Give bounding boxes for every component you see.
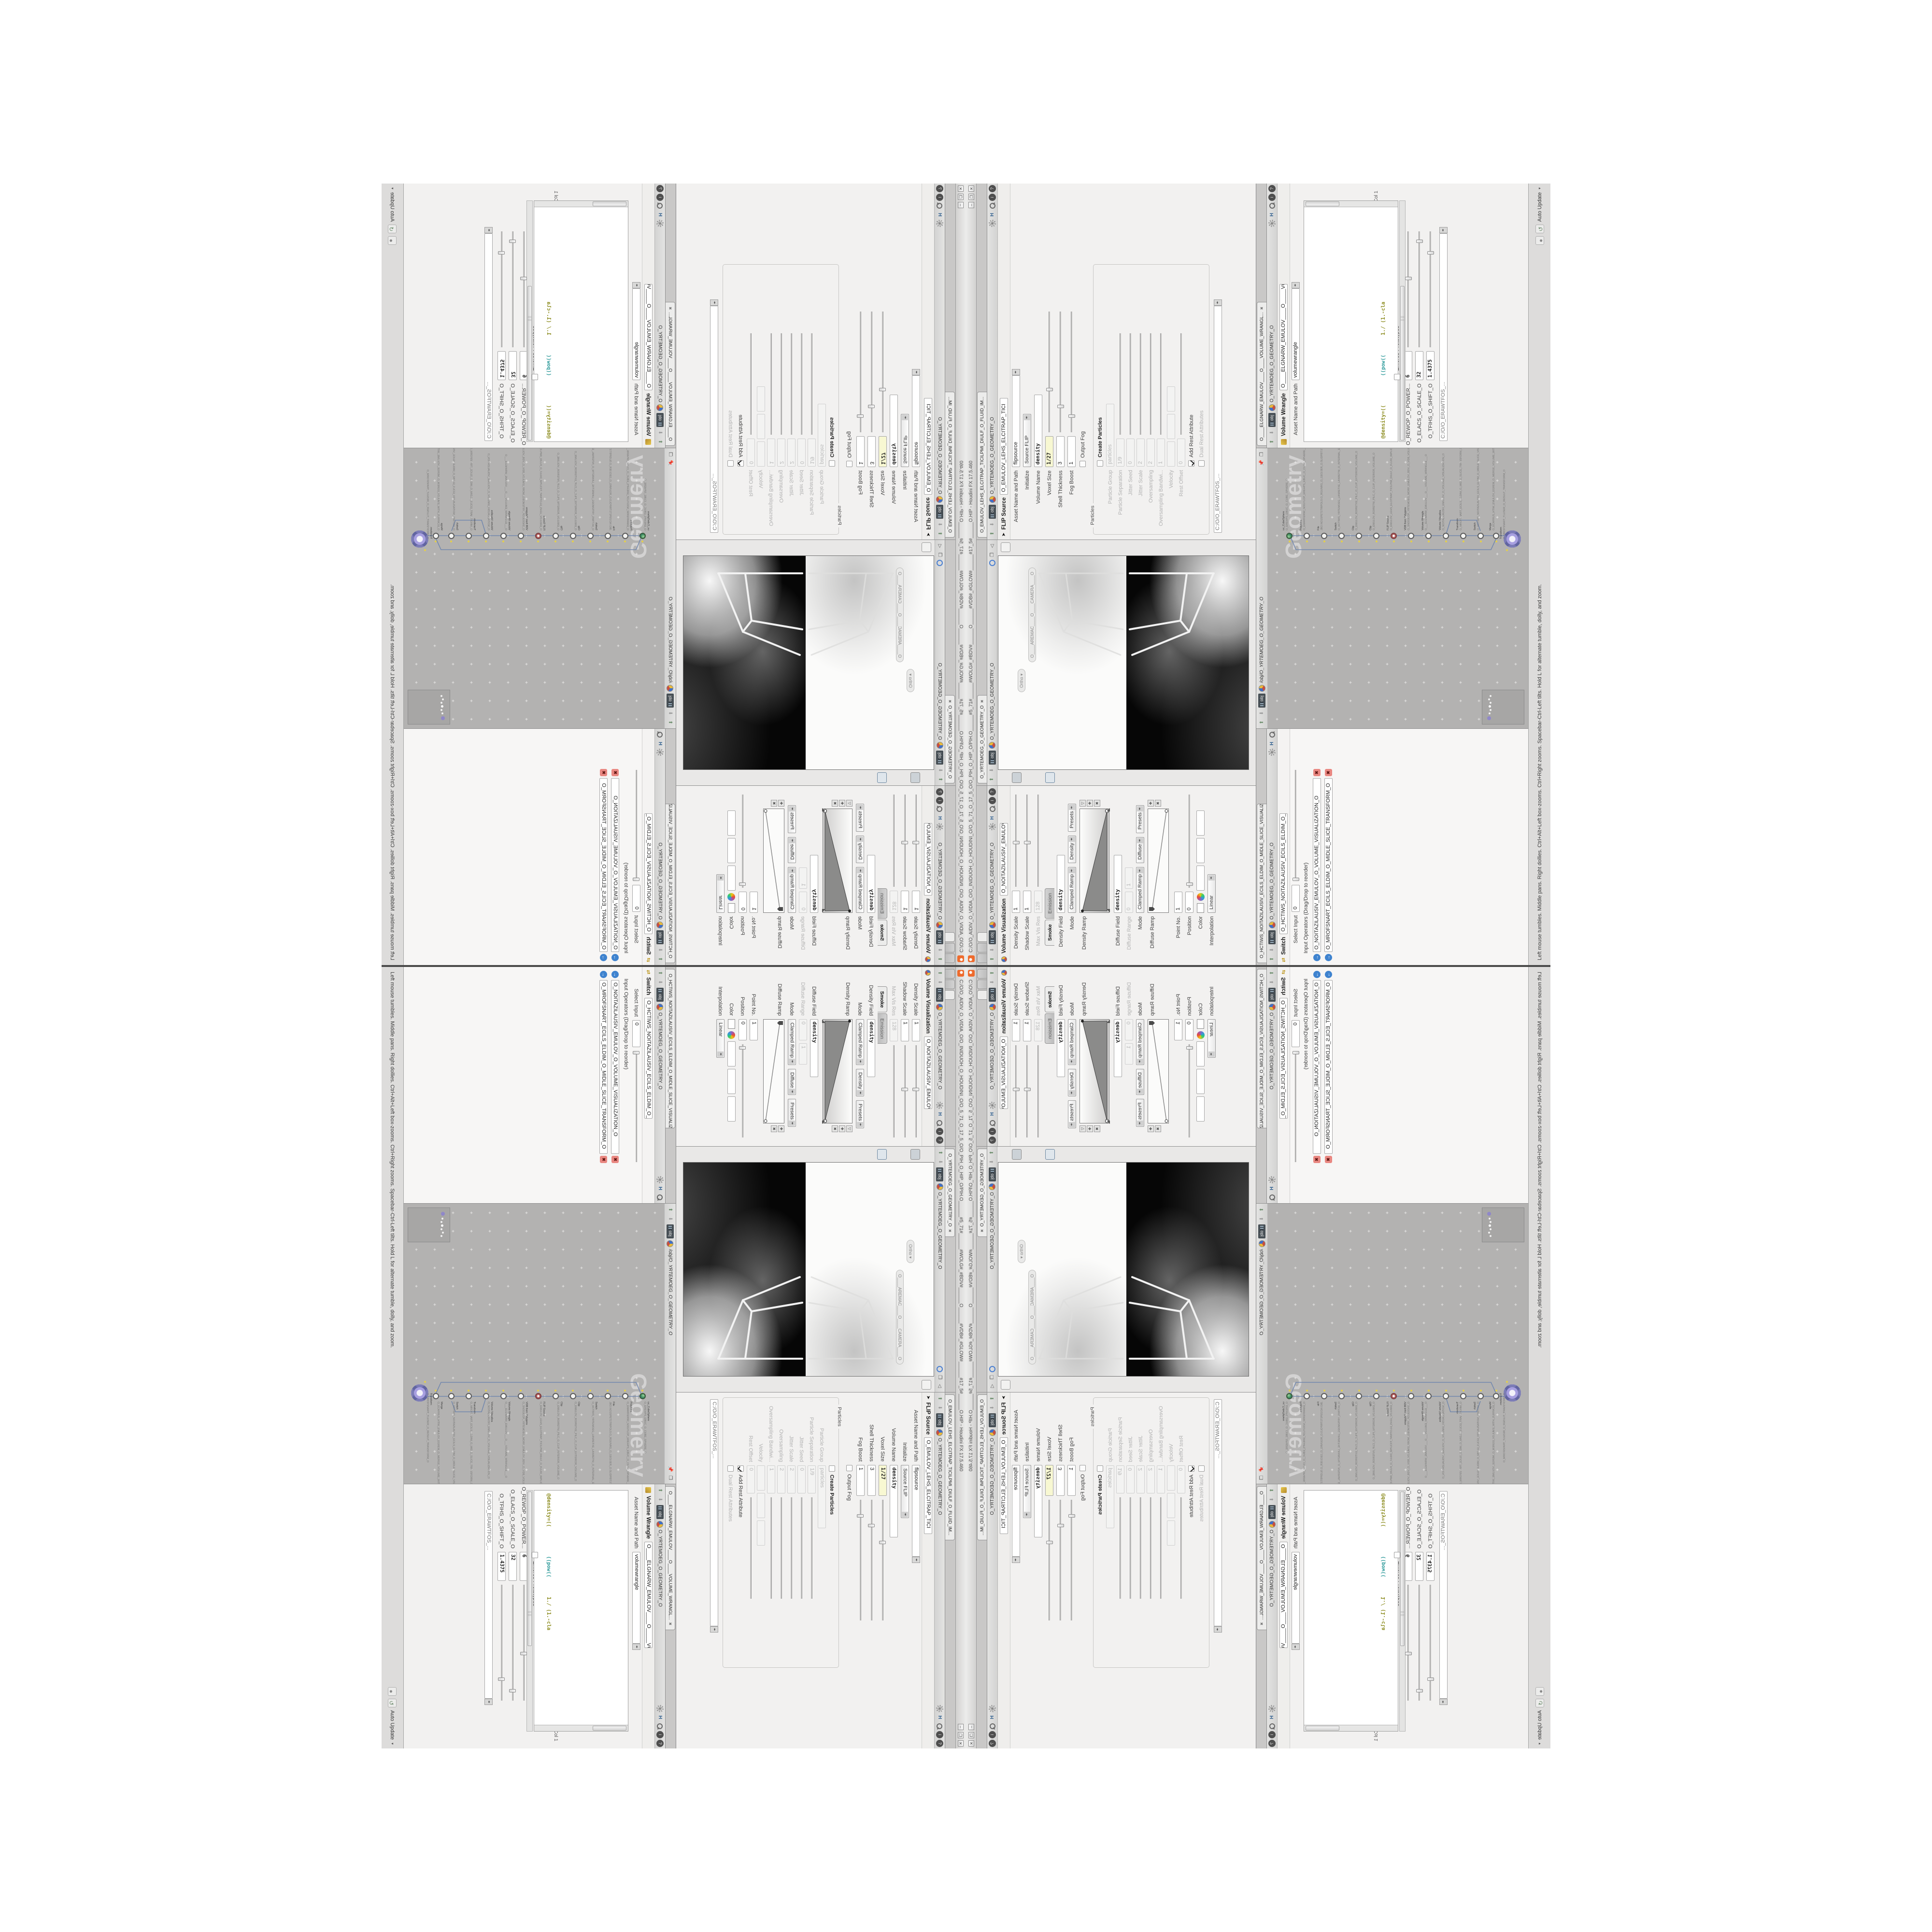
particle-separation-field[interactable]: 1/9 xyxy=(808,1465,816,1493)
tab-smoke[interactable]: Smoke xyxy=(1045,986,1054,1012)
viewport-tool-icon[interactable] xyxy=(799,772,809,783)
network-node[interactable]: Volume Wrangle O___ELGNARW_EMULOV___O___… xyxy=(1425,532,1432,539)
color-component-field[interactable] xyxy=(727,810,736,836)
color-wheel-icon[interactable] xyxy=(1197,893,1205,901)
viewport-tool-icon[interactable] xyxy=(1123,1149,1133,1160)
node-name-field[interactable]: O____ELGNARW_EMULOV____O_____VO xyxy=(1279,284,1288,390)
node-circle[interactable] xyxy=(622,1393,628,1399)
diffuse-range-max[interactable]: 1 xyxy=(799,867,807,889)
select-input-field[interactable]: 0 xyxy=(1292,1020,1300,1047)
point-no-field[interactable]: 1 xyxy=(1174,892,1182,913)
recook-icon[interactable]: ↺ xyxy=(388,1699,397,1707)
diffuse-ramp-widget[interactable] xyxy=(763,1019,784,1123)
hand-tool-icon[interactable]: ● xyxy=(1535,236,1544,245)
reorder-arrow-icon[interactable]: → xyxy=(1325,954,1332,961)
flip-pane-tab[interactable]: O_EMULOV_LEHS_ELCITRAP_TICILPMI_DIULF_O_… xyxy=(945,392,955,538)
rest-offset-field[interactable]: 0 xyxy=(747,1465,755,1493)
scale-field[interactable]: 32 xyxy=(1415,1552,1423,1581)
tab-emission[interactable]: Emission xyxy=(878,1013,887,1044)
viewport-tool-icon[interactable] xyxy=(1012,1149,1022,1160)
density-dropdown[interactable]: Density xyxy=(856,1069,864,1096)
jitter-scale-slider[interactable] xyxy=(791,1497,792,1599)
velocity-component-field[interactable] xyxy=(757,1493,765,1518)
obj-context-chip[interactable]: obj xyxy=(1268,1505,1276,1519)
node-circle[interactable] xyxy=(639,1393,646,1399)
nav-up-icon[interactable]: ⬆ xyxy=(1269,438,1276,445)
search-icon[interactable] xyxy=(989,1119,996,1126)
particle-separation-slider[interactable] xyxy=(811,333,812,435)
obj-context-chip[interactable]: obj xyxy=(1258,1224,1265,1238)
shadow-scale-slider[interactable] xyxy=(1026,1045,1028,1137)
ramp-add-point-icon[interactable]: ✚ xyxy=(839,800,845,807)
tab-close-icon[interactable]: ✖ xyxy=(948,1229,952,1233)
network-node[interactable]: uv_CubeSphere O_EREHPS_EBUC_O_CUBE_SPHER… xyxy=(1286,1393,1293,1400)
display-option-icon[interactable] xyxy=(1045,1380,1055,1390)
diffuse-range-min[interactable]: 0 xyxy=(799,892,807,913)
viewport-tool-icon[interactable] xyxy=(888,772,898,783)
select-input-slider[interactable] xyxy=(1295,770,1296,881)
search-icon[interactable] xyxy=(936,1722,943,1730)
nav-up-icon[interactable]: ⬆ xyxy=(937,955,943,963)
viewport-tool-icon[interactable] xyxy=(888,1149,898,1160)
node-circle[interactable] xyxy=(518,533,524,539)
input-operator-item[interactable]: O_NOITAZILAUSIV_EMULOV_O_VOLUME_VISUALIZ… xyxy=(1313,980,1321,1154)
pane-maximize-icon[interactable]: ❒ xyxy=(989,1374,996,1381)
obj-context-chip[interactable]: obj xyxy=(989,988,996,1002)
asset-name-field[interactable]: flipsource xyxy=(1012,375,1020,467)
nav-down-icon[interactable]: ⬇ xyxy=(1259,1215,1265,1222)
node-name-field[interactable]: O____ELGNARW_EMULOV____O_____VO xyxy=(1279,1542,1288,1648)
viewport-tool-icon[interactable] xyxy=(855,772,865,783)
jitter-seed-slider[interactable] xyxy=(801,1497,802,1599)
diffuse-dropdown[interactable]: Diffuse xyxy=(1136,1069,1144,1095)
spinner-icon[interactable]: ◂▸ xyxy=(1292,1644,1300,1650)
asset-name-field[interactable]: flipsource xyxy=(912,375,920,467)
shift-slider[interactable] xyxy=(501,231,502,347)
create-particles-checkbox[interactable] xyxy=(829,1465,835,1472)
network-node[interactable]: Volume Wrangle O___ELGNARW_EMULOV___O___… xyxy=(500,1393,507,1400)
viewport-tool-icon[interactable] xyxy=(822,1149,831,1160)
auto-update-label[interactable]: Auto Update xyxy=(1537,1710,1543,1740)
node-circle[interactable] xyxy=(500,1393,507,1399)
tab-close-icon[interactable]: ✖ xyxy=(980,700,984,703)
diffuse-range-max[interactable]: 1 xyxy=(799,1043,807,1065)
max-vis-res-slider[interactable] xyxy=(1037,1045,1039,1137)
enforce-prototypes-checkbox[interactable] xyxy=(532,374,538,380)
display-option-icon[interactable] xyxy=(922,1380,931,1390)
remove-input-icon[interactable]: ✖ xyxy=(612,1156,619,1163)
search-icon[interactable] xyxy=(656,1193,664,1201)
network-node[interactable]: File JBO.NO1SPET1TRIPOLS.O_RGUNRG_O_GEO/… xyxy=(604,1393,611,1400)
node-path[interactable]: O_YRTEMOEG_O_GEOMETRY_O xyxy=(937,1438,942,1515)
pane-maximize-icon[interactable]: ❒ xyxy=(1258,451,1265,458)
jitter-scale-field[interactable]: 2 xyxy=(1136,439,1145,467)
ramp-add-point-icon[interactable]: ✚ xyxy=(839,1125,845,1132)
asset-path-field[interactable]: C:/O/O_ERAWTFOS_... xyxy=(1214,306,1222,533)
node-name-field[interactable]: O_EMULOV_LEHS_ELCITRAP_TICI xyxy=(1000,1437,1008,1534)
max-vis-res-field[interactable]: 128 xyxy=(1034,1019,1042,1041)
gear-icon[interactable] xyxy=(989,1102,996,1109)
nav-down-icon[interactable]: ⬇ xyxy=(937,1404,943,1411)
network-minimap[interactable] xyxy=(408,1207,450,1242)
param-pane-tab[interactable] xyxy=(977,932,987,942)
network-path[interactable]: /obj/O_YRTEMOEG_O_GEOMETRY_O xyxy=(668,597,673,683)
spinner-icon[interactable]: ◂▸ xyxy=(912,369,920,375)
nav-up-icon[interactable]: ⬆ xyxy=(937,776,943,783)
node-circle[interactable] xyxy=(1338,1393,1345,1399)
param-pane-tab[interactable] xyxy=(945,953,955,963)
reorder-arrow-icon[interactable]: → xyxy=(600,971,608,978)
dual-rest-attributes-checkbox[interactable] xyxy=(1198,1465,1205,1472)
nav-down-icon[interactable]: ⬇ xyxy=(989,1404,996,1411)
shadow-scale-field[interactable]: 1 xyxy=(901,1019,909,1041)
node-circle[interactable] xyxy=(1493,533,1499,539)
search-icon[interactable] xyxy=(989,1722,996,1730)
node-circle[interactable] xyxy=(587,1393,594,1399)
display-option-icon[interactable] xyxy=(833,1380,842,1390)
select-input-field[interactable]: 0 xyxy=(1292,885,1300,912)
density-dropdown[interactable]: Density xyxy=(1068,836,1076,863)
scale-field[interactable]: 32 xyxy=(509,1552,517,1581)
search-icon[interactable] xyxy=(656,202,664,210)
network-node[interactable]: Clip O_EMULOV_ROIRETXE_PILC_O_CLIP_EXTER… xyxy=(1356,1393,1363,1400)
nav-down-icon[interactable]: ⬇ xyxy=(989,521,996,528)
ramp-delete-point-icon[interactable]: ✖ xyxy=(771,800,777,807)
oversampling-bandwidth-field[interactable]: 1 xyxy=(1157,439,1165,467)
viewport-tool-icon[interactable] xyxy=(1112,1149,1122,1160)
network-node[interactable]: VDB from Polygons O_SNOGILOP_YRTEMOEG_MO… xyxy=(517,1393,524,1400)
node-circle[interactable] xyxy=(483,1393,489,1399)
input-operator-item[interactable]: O_MROFSNART_ECILS_ELDIM_O_MIDLE_SLICE_TR… xyxy=(600,980,608,1154)
select-input-slider[interactable] xyxy=(1295,1051,1296,1162)
node-circle[interactable] xyxy=(1304,1393,1310,1399)
viewport-tool-icon[interactable] xyxy=(877,772,887,783)
density-dropdown[interactable]: Density xyxy=(856,836,864,863)
obj-context-chip[interactable]: obj xyxy=(937,1167,944,1181)
node-circle[interactable] xyxy=(1443,533,1449,539)
view-mode-pill[interactable]: Ortho ▾ xyxy=(1018,669,1025,692)
shift-field[interactable]: 1.4375 xyxy=(1426,351,1435,380)
color-swatch[interactable] xyxy=(1197,1019,1204,1029)
nav-up-icon[interactable]: ⬆ xyxy=(667,719,674,726)
node-circle[interactable] xyxy=(466,533,472,539)
color-component-field[interactable] xyxy=(1196,838,1205,863)
color-component-field[interactable] xyxy=(1196,1041,1205,1066)
help-icon[interactable]: ? xyxy=(936,1740,943,1747)
output-fog-checkbox[interactable] xyxy=(1080,1465,1086,1471)
diffuse-ramp-widget[interactable] xyxy=(763,809,784,913)
nav-up-icon[interactable]: ⬆ xyxy=(989,530,996,537)
node-circle[interactable] xyxy=(433,1393,439,1399)
obj-context-chip[interactable]: obj xyxy=(667,694,674,708)
spiral-target-icon[interactable] xyxy=(937,560,943,566)
add-rest-attribute-checkbox[interactable] xyxy=(738,460,744,467)
gear-icon[interactable] xyxy=(936,823,943,830)
switch-pane-tab[interactable]: O_HCTIWS_NOITAZILAUSIV_ECILS_ELDIM_O_MID… xyxy=(1257,804,1266,963)
viewport-canvas[interactable]: Ortho ▾ O____AREMAC____O____CAMERA____O xyxy=(683,555,934,770)
rest-offset-field[interactable]: 0 xyxy=(1177,1465,1185,1493)
jitter-seed-slider[interactable] xyxy=(1130,1497,1131,1599)
jitter-scale-slider[interactable] xyxy=(791,333,792,435)
nav-up-icon[interactable]: ⬆ xyxy=(1269,969,1276,977)
viewport-node-path[interactable]: O_YRTEMOEG_O_GEOMETRY_O xyxy=(938,1192,943,1269)
param-pane-tab[interactable] xyxy=(945,980,955,989)
obj-context-chip[interactable]: obj xyxy=(1268,988,1276,1002)
pane-maximize-icon[interactable]: ❒ xyxy=(667,1474,674,1481)
display-option-icon[interactable] xyxy=(888,543,898,553)
nav-down-icon[interactable]: ⬇ xyxy=(657,429,664,436)
tab-close-icon[interactable]: ✖ xyxy=(1260,307,1264,310)
chevron-down-icon[interactable]: ▾ xyxy=(1537,1743,1542,1745)
tab-close-icon[interactable]: ✖ xyxy=(948,700,952,703)
oversampling-field[interactable]: 2 xyxy=(1147,439,1155,467)
particle-separation-slider[interactable] xyxy=(811,1497,812,1599)
viewport-tool-icon[interactable] xyxy=(844,1149,853,1160)
operation-controls-icon[interactable]: ➤ xyxy=(1001,533,1007,537)
code-hscrollbar[interactable]: ⣿⣿ xyxy=(1399,1490,1406,1732)
viewport-tool-icon[interactable] xyxy=(922,772,931,783)
spinner-icon[interactable]: ◂▸ xyxy=(632,282,640,288)
spinner-icon[interactable]: ◂▸ xyxy=(1292,282,1300,288)
operation-controls-icon[interactable]: ➤ xyxy=(925,533,931,537)
display-option-icon[interactable] xyxy=(1023,1380,1033,1390)
reorder-arrow-icon[interactable]: → xyxy=(1313,954,1321,961)
node-circle[interactable] xyxy=(1338,533,1345,539)
pane-maximize-icon[interactable]: ❒ xyxy=(1258,1474,1265,1481)
velocity-component-field[interactable] xyxy=(1167,1493,1175,1518)
display-option-icon[interactable] xyxy=(1101,1380,1110,1390)
max-vis-res-slider[interactable] xyxy=(893,1045,895,1137)
chevron-down-icon[interactable]: ▾ xyxy=(390,1743,395,1745)
viewport-tool-icon[interactable] xyxy=(844,772,853,783)
jitter-seed-slider[interactable] xyxy=(801,333,802,435)
oversampling-bandwidth-slider[interactable] xyxy=(770,1497,772,1599)
viewport-tool-icon[interactable] xyxy=(1023,1149,1033,1160)
mode-dropdown[interactable]: Clamped Ramp xyxy=(1068,867,1076,913)
spinner-icon[interactable]: ◂▸ xyxy=(1439,227,1448,233)
viewport-tool-icon[interactable] xyxy=(833,772,842,783)
network-node[interactable]: VDB from Polygons O_SNOGILOP_YRTEMOEG_MO… xyxy=(517,532,524,539)
display-option-icon[interactable] xyxy=(1001,543,1010,553)
density-scale-field[interactable]: 1 xyxy=(1012,1019,1020,1041)
network-node[interactable]: Volume Visualiza O_NOITAZILAUSIV_EMULOV_… xyxy=(1443,532,1449,539)
ramp-delete-point-icon[interactable]: ✖ xyxy=(771,1125,777,1132)
node-circle[interactable] xyxy=(1460,533,1466,539)
spinner-icon[interactable]: ◂▸ xyxy=(484,227,493,233)
viewport-tool-icon[interactable] xyxy=(1145,1149,1155,1160)
node-circle[interactable] xyxy=(433,533,439,539)
param-pane-tab[interactable] xyxy=(945,943,955,952)
obj-context-chip[interactable]: obj xyxy=(989,1167,996,1181)
viewport-tool-icon[interactable] xyxy=(1067,1149,1077,1160)
display-option-icon[interactable] xyxy=(1079,1380,1088,1390)
network-node[interactable]: Transform O_MROFSNART_TLUSER_O_RESULT_TR… xyxy=(1504,541,1510,548)
max-vis-res-field[interactable]: 128 xyxy=(890,891,898,913)
code-vscrollbar[interactable] xyxy=(534,201,628,207)
density-ramp-widget[interactable] xyxy=(823,809,852,913)
position-slider[interactable] xyxy=(1189,1044,1190,1137)
pane-collapse-icon[interactable]: ◁ xyxy=(937,1382,944,1390)
network-node[interactable]: Volume Visualiza O_NOITAZILAUSIV_EMULOV_… xyxy=(483,1393,489,1400)
network-minimap[interactable] xyxy=(408,690,450,724)
spiral-target-icon[interactable] xyxy=(989,1366,995,1372)
display-option-icon[interactable] xyxy=(866,1380,876,1390)
network-node[interactable]: PolyWire O_EMARFERIW_NOGYLOP_EREHPS_EBUC… xyxy=(622,1393,628,1400)
viewport-tool-icon[interactable] xyxy=(1067,772,1077,783)
node-circle[interactable] xyxy=(1504,1384,1521,1402)
display-option-icon[interactable] xyxy=(1012,1380,1022,1390)
diffuse-ramp-widget[interactable] xyxy=(1148,1019,1169,1123)
node-circle[interactable] xyxy=(466,1393,472,1399)
network-node[interactable]: Volume Visualiza O_NOITAZILAUSIV_EMULOV_… xyxy=(483,532,489,539)
obj-context-chip[interactable]: obj xyxy=(936,1413,943,1427)
obj-context-chip[interactable]: obj xyxy=(656,413,664,427)
gear-icon[interactable] xyxy=(989,1705,996,1712)
auto-update-label[interactable]: Auto Update xyxy=(390,192,396,222)
maximize-button[interactable]: ❐ xyxy=(958,194,964,200)
flip-pane-tab[interactable]: O_EMULOV_LEHS_ELCITRAP_TICILPMI_DIULF_O_… xyxy=(977,392,987,538)
power-slider[interactable] xyxy=(1407,1585,1409,1701)
color-component-field[interactable] xyxy=(1196,1096,1205,1122)
color-swatch[interactable] xyxy=(728,1019,735,1029)
display-option-icon[interactable] xyxy=(866,543,876,553)
viewport-tool-icon[interactable] xyxy=(777,772,787,783)
display-option-icon[interactable] xyxy=(844,543,853,553)
viewport-node-path[interactable]: O_YRTEMOEG_O_GEOMETRY_O xyxy=(990,1192,995,1269)
presets-dropdown[interactable]: Presets xyxy=(1068,804,1076,832)
network-node[interactable]: Switch O_HCTIWS_YRTEMOEG_LANRETXE_LANRET… xyxy=(587,1393,594,1400)
nav-down-icon[interactable]: ⬇ xyxy=(1269,946,1276,953)
nav-down-icon[interactable]: ⬇ xyxy=(657,1496,664,1503)
initialize-dropdown[interactable]: Source FLIP xyxy=(1023,414,1031,467)
code-vscrollbar[interactable] xyxy=(1304,201,1398,207)
help-icon[interactable]: ? xyxy=(656,185,664,192)
spinner-icon[interactable]: ◂▸ xyxy=(484,1699,493,1705)
network-node[interactable]: FLIP Source O_EMULOV_LEHS_ELCITRAP_TICIL… xyxy=(535,1393,541,1400)
network-node[interactable]: uv_CubeSphere O_EREHPS_EBUC_O_CUBE_SPHER… xyxy=(639,532,646,539)
ramp-delete-point-icon[interactable]: ✖ xyxy=(832,800,838,807)
node-name-field[interactable]: O_HCTIWS_NOITAZILAUSIV_ECILS_ELDIM_O_ xyxy=(644,998,653,1119)
display-option-icon[interactable] xyxy=(1056,543,1066,553)
node-circle[interactable] xyxy=(1493,1393,1499,1399)
display-option-icon[interactable] xyxy=(877,543,887,553)
nav-up-icon[interactable]: ⬆ xyxy=(1269,1487,1276,1494)
voxel-size-slider[interactable] xyxy=(882,312,883,432)
viewport-tool-icon[interactable] xyxy=(1023,772,1033,783)
spinner-icon[interactable]: ◂▸ xyxy=(1214,299,1222,306)
diffuse-presets-dropdown[interactable]: Presets xyxy=(788,1099,796,1127)
gear-icon[interactable] xyxy=(989,823,996,830)
network-node[interactable]: Switch O_HCTIWS_NOITAZILAUSIV_ECILS_ELDI… xyxy=(448,532,455,539)
node-circle[interactable] xyxy=(1425,1393,1432,1399)
spinner-icon[interactable]: ◂▸ xyxy=(1012,1557,1020,1563)
network-node[interactable]: Switch O_HCTIWS_YRTEMOEG_LANRETXE_LANRET… xyxy=(1338,1393,1345,1400)
param-pane-tab[interactable] xyxy=(977,980,987,989)
display-option-icon[interactable] xyxy=(844,1380,853,1390)
color-component-field[interactable] xyxy=(727,1069,736,1094)
node-circle[interactable] xyxy=(1373,533,1379,539)
viewport-tool-icon[interactable] xyxy=(833,1149,842,1160)
diffuse-dropdown[interactable]: Diffuse xyxy=(1136,837,1144,864)
node-circle[interactable] xyxy=(570,1393,576,1399)
nav-up-icon[interactable]: ⬆ xyxy=(937,1395,943,1402)
node-circle[interactable] xyxy=(1443,1393,1449,1399)
density-dropdown[interactable]: Density xyxy=(1068,1069,1076,1096)
scale-field[interactable]: 32 xyxy=(509,351,517,380)
gear-icon[interactable] xyxy=(936,1705,943,1712)
asset-name-field[interactable]: volumewrangle xyxy=(1292,288,1300,380)
nav-up-icon[interactable]: ⬆ xyxy=(989,955,996,963)
velocity-component-field[interactable] xyxy=(1167,1465,1175,1491)
network-canvas[interactable]: Geometry uv_CubeSphere O_EREHPS_EBUC_O xyxy=(404,1204,664,1484)
node-name-field[interactable]: O_EMULOV_LEHS_ELCITRAP_TICI xyxy=(924,398,932,495)
network-node[interactable]: Clip O_EMULOV_ROIRETXE_PILC_O_CLIP_EXTER… xyxy=(569,1393,576,1400)
asset-name-field[interactable]: volumewrangle xyxy=(632,1552,640,1644)
color-swatch[interactable] xyxy=(728,903,735,913)
shift-slider[interactable] xyxy=(501,1585,502,1701)
viewport-tool-icon[interactable] xyxy=(1045,772,1055,783)
nav-up-icon[interactable]: ⬆ xyxy=(989,1395,996,1402)
density-field[interactable]: density xyxy=(1057,855,1065,913)
info-icon[interactable]: i xyxy=(989,1731,996,1738)
node-circle[interactable] xyxy=(483,533,489,539)
display-option-icon[interactable] xyxy=(1034,1380,1044,1390)
hand-tool-icon[interactable]: ● xyxy=(1535,1687,1544,1696)
fog-boost-field[interactable]: 1 xyxy=(856,1465,865,1496)
search-icon[interactable] xyxy=(936,202,943,210)
obj-context-chip[interactable]: obj xyxy=(1258,694,1265,708)
gear-icon[interactable] xyxy=(1268,220,1276,227)
viewport-tool-icon[interactable] xyxy=(1101,772,1110,783)
network-node[interactable]: Transform O_MROFSNART_ECILS_ELDIM_O_MIDL… xyxy=(465,1393,472,1400)
shadow-scale-slider[interactable] xyxy=(1026,795,1028,887)
camera-pill[interactable]: O____AREMAC____O____CAMERA____O xyxy=(896,1270,904,1364)
network-node[interactable]: Switch O_HCTIWS_NOITAZILAUSIV_ECILS_ELDI… xyxy=(1477,1393,1484,1400)
velocity-component-field[interactable] xyxy=(757,386,765,412)
switch-pane-tab[interactable]: O_HCTIWS_NOITAZILAUSIV_ECILS_ELDIM_O_MID… xyxy=(666,969,675,1128)
viewport-tool-icon[interactable] xyxy=(922,1149,931,1160)
velocity-component-field[interactable] xyxy=(1167,386,1175,412)
oversampling-slider[interactable] xyxy=(781,333,782,435)
node-circle[interactable] xyxy=(1477,533,1484,539)
density-scale-field[interactable]: 1 xyxy=(912,1019,920,1041)
position-field[interactable]: 0 xyxy=(1185,892,1193,913)
obj-context-chip[interactable]: obj xyxy=(989,505,996,519)
operation-controls-icon[interactable]: ➤ xyxy=(925,1395,931,1399)
dual-rest-attributes-checkbox[interactable] xyxy=(727,460,734,467)
ramp-delete-point-icon[interactable]: ✖ xyxy=(1094,1125,1100,1132)
dual-rest-attributes-checkbox[interactable] xyxy=(1198,460,1205,467)
gear-icon[interactable] xyxy=(1268,749,1276,756)
remove-input-icon[interactable]: ✖ xyxy=(600,1156,608,1163)
ramp-picker-icon[interactable]: ▽ xyxy=(846,1125,852,1132)
chevron-down-icon[interactable]: ▾ xyxy=(390,187,395,189)
obj-context-chip[interactable]: obj xyxy=(936,930,943,944)
jitter-scale-slider[interactable] xyxy=(1140,333,1141,435)
ramp-picker-icon[interactable]: ▽ xyxy=(846,800,852,807)
interpolation-dropdown[interactable]: Linear xyxy=(716,874,724,913)
nav-down-icon[interactable]: ⬇ xyxy=(989,767,995,774)
minimize-button[interactable]: – xyxy=(958,202,964,208)
nav-down-icon[interactable]: ⬇ xyxy=(989,946,996,953)
minimize-button[interactable]: – xyxy=(958,1724,964,1730)
point-no-field[interactable]: 1 xyxy=(1174,1019,1182,1040)
diffuse-range-min[interactable]: 0 xyxy=(1125,892,1133,913)
viewport-tool-icon[interactable] xyxy=(1134,1149,1144,1160)
node-path[interactable]: O_YRTEMOEG_O_GEOMETRY_O xyxy=(1269,325,1275,402)
help-icon[interactable]: ? xyxy=(936,185,943,192)
nav-up-icon[interactable]: ⬆ xyxy=(989,776,995,783)
